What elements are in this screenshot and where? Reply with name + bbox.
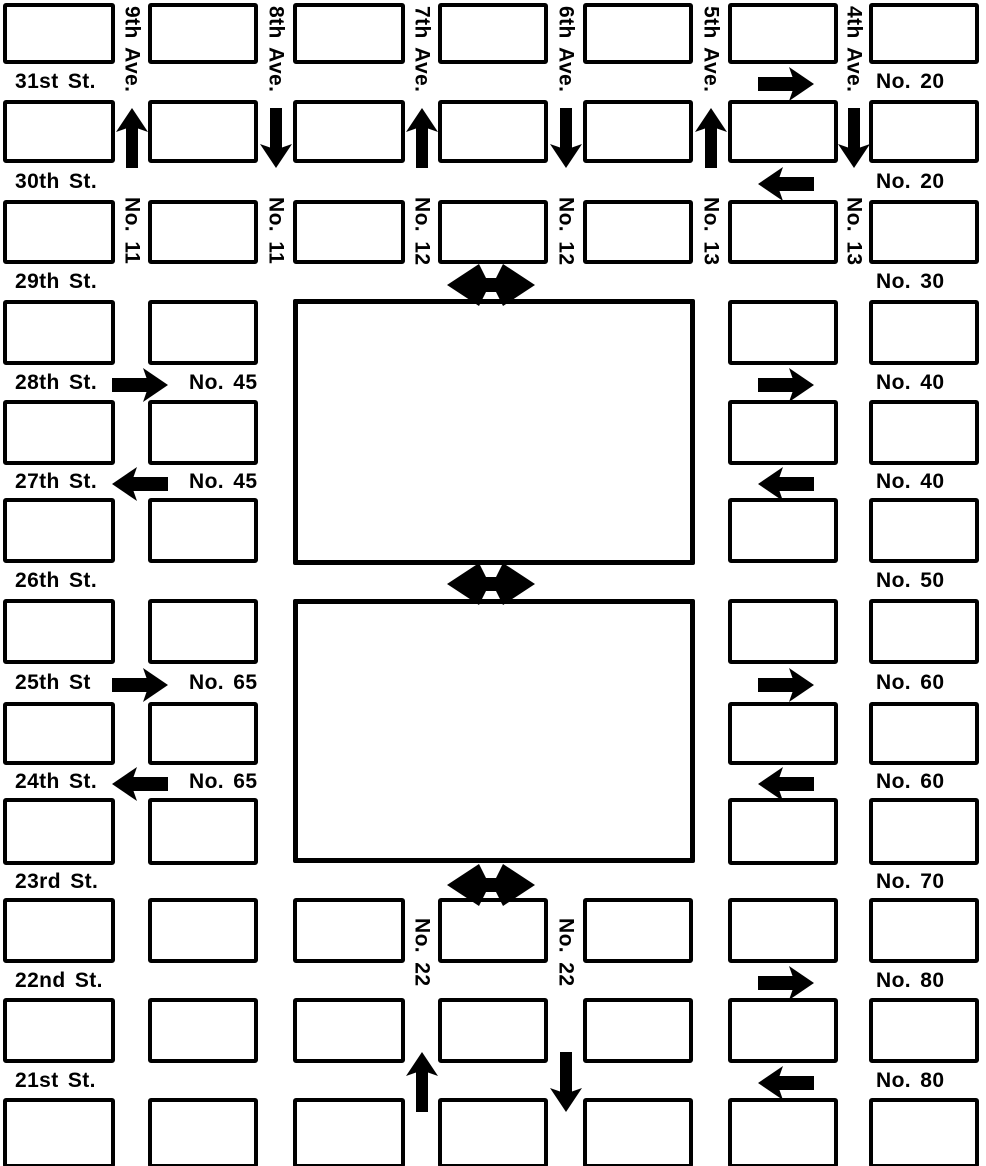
one-way-up-arrow-icon (406, 1052, 438, 1112)
city-block (148, 998, 258, 1063)
one-way-right-arrow-icon (112, 668, 168, 702)
street-label: 21st St. (15, 1070, 96, 1091)
route-number-label: No. 20 (876, 171, 944, 192)
one-way-up-arrow-icon (116, 108, 148, 168)
city-block (869, 498, 979, 563)
city-block (148, 599, 258, 664)
route-number-label: No. 12 (412, 197, 433, 265)
one-way-down-arrow-icon (838, 108, 870, 168)
street-label: 23rd St. (15, 871, 98, 892)
street-label: 27th St. (15, 471, 97, 492)
city-block (869, 702, 979, 765)
street-label: 29th St. (15, 271, 97, 292)
city-block (869, 1098, 979, 1166)
route-number-label: No. 80 (876, 970, 944, 991)
route-number-label: No. 70 (876, 871, 944, 892)
city-block (583, 200, 693, 264)
city-block (438, 3, 548, 64)
city-block (869, 400, 979, 465)
city-block (148, 200, 258, 264)
one-way-down-arrow-icon (260, 108, 292, 168)
city-block (583, 898, 693, 963)
route-number-label: No. 30 (876, 271, 944, 292)
avenue-label: 4th Ave. (844, 6, 865, 92)
city-block (728, 702, 838, 765)
route-number-label: No. 80 (876, 1070, 944, 1091)
city-block (583, 100, 693, 163)
one-way-left-arrow-icon (758, 767, 814, 801)
one-way-left-arrow-icon (758, 467, 814, 501)
avenue-label: 8th Ave. (266, 6, 287, 92)
two-way-arrow-icon (447, 563, 535, 605)
city-block (583, 998, 693, 1063)
route-number-label: No. 40 (876, 372, 944, 393)
city-block (583, 3, 693, 64)
city-block (728, 300, 838, 365)
city-block (728, 3, 838, 64)
city-block (3, 300, 115, 365)
street-grid-map: 31st St.30th St.29th St.28th St.27th St.… (0, 0, 986, 1166)
one-way-left-arrow-icon (758, 1066, 814, 1100)
city-block (869, 898, 979, 963)
city-block (148, 1098, 258, 1166)
one-way-right-arrow-icon (112, 368, 168, 402)
street-label: 31st St. (15, 71, 96, 92)
route-number-label: No. 50 (876, 570, 944, 591)
superblock (293, 299, 695, 565)
street-label: 26th St. (15, 570, 97, 591)
city-block (293, 898, 405, 963)
route-number-label: No. 13 (844, 197, 865, 265)
route-number-label: No. 60 (876, 771, 944, 792)
city-block (148, 100, 258, 163)
city-block (148, 898, 258, 963)
city-block (728, 498, 838, 563)
city-block (3, 1098, 115, 1166)
city-block (728, 100, 838, 163)
city-block (583, 1098, 693, 1166)
two-way-arrow-icon (447, 864, 535, 906)
one-way-down-arrow-icon (550, 108, 582, 168)
one-way-right-arrow-icon (758, 67, 814, 101)
one-way-right-arrow-icon (758, 668, 814, 702)
route-number-label: No. 11 (122, 197, 143, 264)
city-block (148, 702, 258, 765)
city-block (728, 1098, 838, 1166)
city-block (148, 498, 258, 563)
city-block (293, 3, 405, 64)
city-block (728, 599, 838, 664)
city-block (438, 200, 548, 264)
city-block (869, 200, 979, 264)
route-number-label: No. 12 (556, 197, 577, 265)
city-block (293, 998, 405, 1063)
city-block (3, 200, 115, 264)
one-way-up-arrow-icon (406, 108, 438, 168)
city-block (869, 100, 979, 163)
one-way-right-arrow-icon (758, 966, 814, 1000)
city-block (3, 998, 115, 1063)
city-block (148, 3, 258, 64)
city-block (148, 798, 258, 865)
city-block (869, 998, 979, 1063)
route-number-label: No. 65 (189, 672, 257, 693)
avenue-label: 5th Ave. (701, 6, 722, 92)
city-block (869, 798, 979, 865)
city-block (3, 3, 115, 64)
city-block (3, 702, 115, 765)
route-number-label: No. 20 (876, 71, 944, 92)
city-block (293, 1098, 405, 1166)
route-number-label: No. 11 (266, 197, 287, 264)
city-block (3, 400, 115, 465)
city-block (728, 998, 838, 1063)
city-block (869, 300, 979, 365)
avenue-label: 7th Ave. (412, 6, 433, 92)
superblock (293, 599, 695, 863)
one-way-up-arrow-icon (695, 108, 727, 168)
city-block (728, 400, 838, 465)
city-block (293, 200, 405, 264)
route-number-label: No. 65 (189, 771, 257, 792)
street-label: 28th St. (15, 372, 97, 393)
street-label: 25th St (15, 672, 91, 693)
city-block (438, 1098, 548, 1166)
route-number-label: No. 45 (189, 372, 257, 393)
street-label: 24th St. (15, 771, 97, 792)
avenue-label: 9th Ave. (122, 6, 143, 92)
street-label: 30th St. (15, 171, 97, 192)
route-number-label: No. 45 (189, 471, 257, 492)
route-number-label: No. 22 (412, 918, 433, 986)
city-block (728, 200, 838, 264)
city-block (438, 898, 548, 963)
one-way-left-arrow-icon (112, 467, 168, 501)
city-block (3, 898, 115, 963)
route-number-label: No. 22 (556, 918, 577, 986)
city-block (869, 599, 979, 664)
route-number-label: No. 13 (701, 197, 722, 265)
city-block (3, 100, 115, 163)
route-number-label: No. 60 (876, 672, 944, 693)
one-way-left-arrow-icon (758, 167, 814, 201)
city-block (148, 400, 258, 465)
one-way-left-arrow-icon (112, 767, 168, 801)
city-block (869, 3, 979, 64)
street-label: 22nd St. (15, 970, 103, 991)
city-block (728, 798, 838, 865)
avenue-label: 6th Ave. (556, 6, 577, 92)
two-way-arrow-icon (447, 264, 535, 306)
city-block (728, 898, 838, 963)
city-block (438, 100, 548, 163)
city-block (293, 100, 405, 163)
city-block (3, 599, 115, 664)
city-block (148, 300, 258, 365)
city-block (3, 498, 115, 563)
one-way-right-arrow-icon (758, 368, 814, 402)
city-block (3, 798, 115, 865)
city-block (438, 998, 548, 1063)
route-number-label: No. 40 (876, 471, 944, 492)
one-way-down-arrow-icon (550, 1052, 582, 1112)
